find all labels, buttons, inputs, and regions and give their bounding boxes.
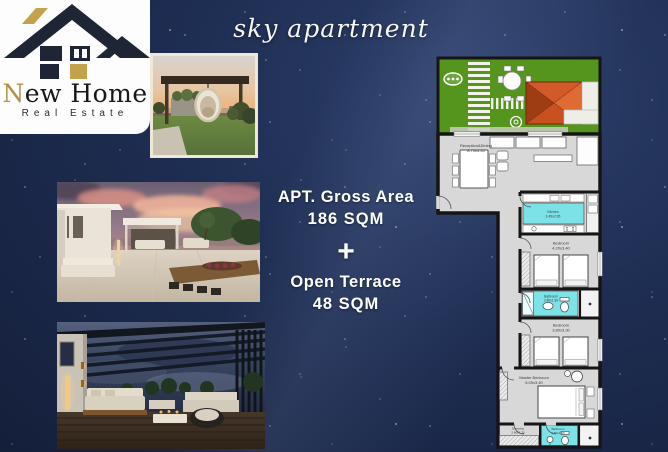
area-summary: APT. Gross Area 186 SQM + Open Terrace 4… <box>252 188 440 314</box>
shaft <box>581 426 599 446</box>
building-shade <box>57 210 65 260</box>
room-label: Kitchen <box>547 210 558 214</box>
brand-name: New Home <box>0 82 150 106</box>
lamp-glow <box>113 238 123 266</box>
nightstand-2 <box>587 409 594 418</box>
sconce-glow <box>79 362 87 370</box>
room-dims: 3.45x2.95 <box>546 215 561 219</box>
room-bathroom-2: Bathroom 1.80x1.60 <box>542 426 599 446</box>
flyer-canvas: New Home Real Estate sky apartment <box>0 0 668 452</box>
egg-chair-cushion <box>202 107 214 117</box>
pergola-roof <box>161 76 249 84</box>
coffee-table <box>153 414 187 423</box>
logo-door-pane <box>74 49 79 58</box>
single-bed <box>534 337 559 366</box>
nightstand <box>587 387 594 396</box>
brand-rest: ew Home <box>25 79 148 108</box>
terrace-value: 48 SQM <box>252 295 440 314</box>
paved-area-bottom <box>564 110 598 124</box>
wardrobe <box>522 335 531 366</box>
brand-initial: N <box>2 79 24 108</box>
console-table <box>534 155 572 162</box>
gross-area-label: APT. Gross Area <box>252 188 440 207</box>
canopy-post-r <box>176 225 179 249</box>
brand-tagline: Real Estate <box>0 108 150 119</box>
garden-stones-icon <box>444 73 462 85</box>
ottoman <box>565 371 571 377</box>
bonsai-crown <box>199 212 215 228</box>
appliance <box>550 196 559 202</box>
round-chair <box>572 371 583 382</box>
photo-night-lounge <box>57 322 265 449</box>
sofa-seat <box>61 265 115 277</box>
single-bed <box>534 255 559 287</box>
logo-door-pane-2 <box>82 49 87 58</box>
shower <box>523 292 534 315</box>
page-title: sky apartment <box>222 14 440 43</box>
logo-window-2 <box>40 64 59 79</box>
room-dims: 8.75x5.45 <box>467 148 485 153</box>
chaise <box>149 400 175 409</box>
canopy-shadow <box>125 225 179 229</box>
room-dims: 1.80x1.60 <box>551 431 565 435</box>
appliance-2 <box>561 196 570 202</box>
room-kitchen: Kitchen 3.45x2.95 <box>523 194 599 233</box>
photo-dusk-terrace <box>57 182 260 302</box>
sconce-glow-2 <box>79 380 87 388</box>
single-bed-2 <box>563 337 588 366</box>
kitchen-sink <box>532 227 536 231</box>
sofa-left-seat <box>85 396 145 410</box>
canopy <box>123 218 181 225</box>
room-dims: 3.80x3.30 <box>552 328 570 333</box>
stepping-walkway-vertical <box>468 60 490 132</box>
room-dims: 4.20x3.40 <box>552 246 570 251</box>
toilet <box>560 298 569 313</box>
plant-right-3 <box>227 108 239 120</box>
double-bed <box>538 386 585 418</box>
gross-area-value: 186 SQM <box>252 210 440 229</box>
house-logo-icon <box>0 0 150 80</box>
planter-bush <box>172 91 182 101</box>
terrace-label: Open Terrace <box>252 273 440 292</box>
pergola-post-left <box>165 84 169 124</box>
sofa-pillow <box>91 390 101 397</box>
wardrobe <box>500 372 508 400</box>
sofa-pillow-2 <box>105 390 115 397</box>
sofa-wood-base <box>83 410 147 415</box>
planter-bush-2 <box>181 89 193 101</box>
dryer <box>588 205 598 213</box>
washer <box>588 195 598 203</box>
room-dims: 2.80x1.80 <box>544 299 558 303</box>
daybed <box>135 240 165 249</box>
single-bed-2 <box>563 255 588 287</box>
logo-window-1 <box>40 46 62 61</box>
logo-chimney <box>22 8 48 24</box>
white-building <box>57 208 111 260</box>
wall-window <box>60 342 74 366</box>
logo-window-gold <box>70 64 87 79</box>
room-dims: 5.00x3.40 <box>525 380 543 385</box>
wardrobe-run <box>500 436 539 446</box>
room-bathroom-1: Bathroom 2.80x1.80 <box>522 291 599 317</box>
wicker-cushion <box>195 409 219 421</box>
shaft-dot <box>589 303 592 306</box>
sofa-right-back <box>185 392 237 401</box>
roof-garden <box>438 58 600 134</box>
sink <box>543 302 553 309</box>
canopy-post-l <box>125 225 128 253</box>
plus-sign: + <box>252 239 440 265</box>
light-column-glow <box>61 372 75 412</box>
photo-sunset-pergola <box>150 53 258 158</box>
hob <box>564 226 576 232</box>
floor-plan: Reception&Dining 8.75x5.45 Kit <box>436 56 604 450</box>
shrub-left <box>153 102 165 114</box>
curtain <box>69 216 73 238</box>
agency-logo: New Home Real Estate <box>0 0 150 134</box>
wardrobe <box>522 252 531 286</box>
shaft-dot <box>589 437 592 440</box>
